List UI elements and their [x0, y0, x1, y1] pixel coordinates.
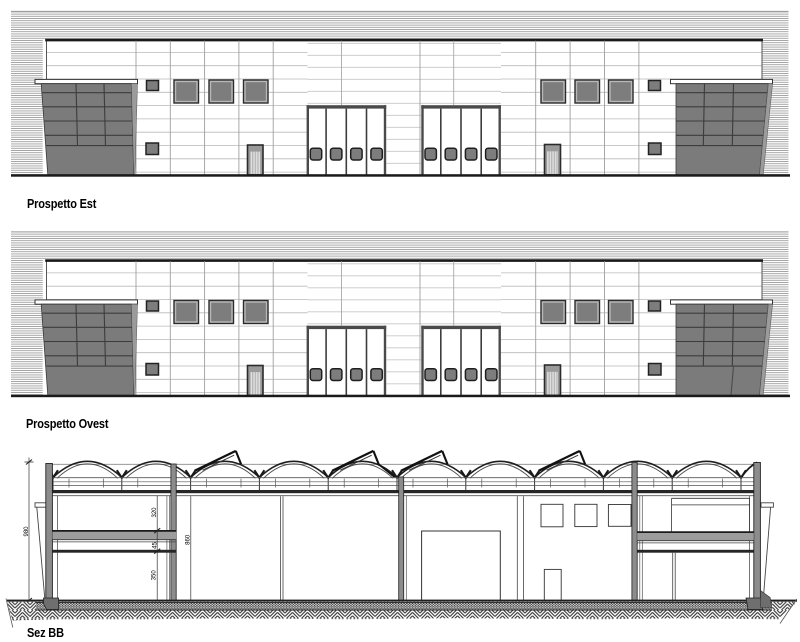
- svg-text:980: 980: [24, 526, 30, 537]
- svg-text:45: 45: [152, 542, 158, 549]
- svg-text:860: 860: [185, 534, 191, 545]
- svg-text:350: 350: [152, 570, 158, 581]
- svg-text:320: 320: [152, 507, 158, 518]
